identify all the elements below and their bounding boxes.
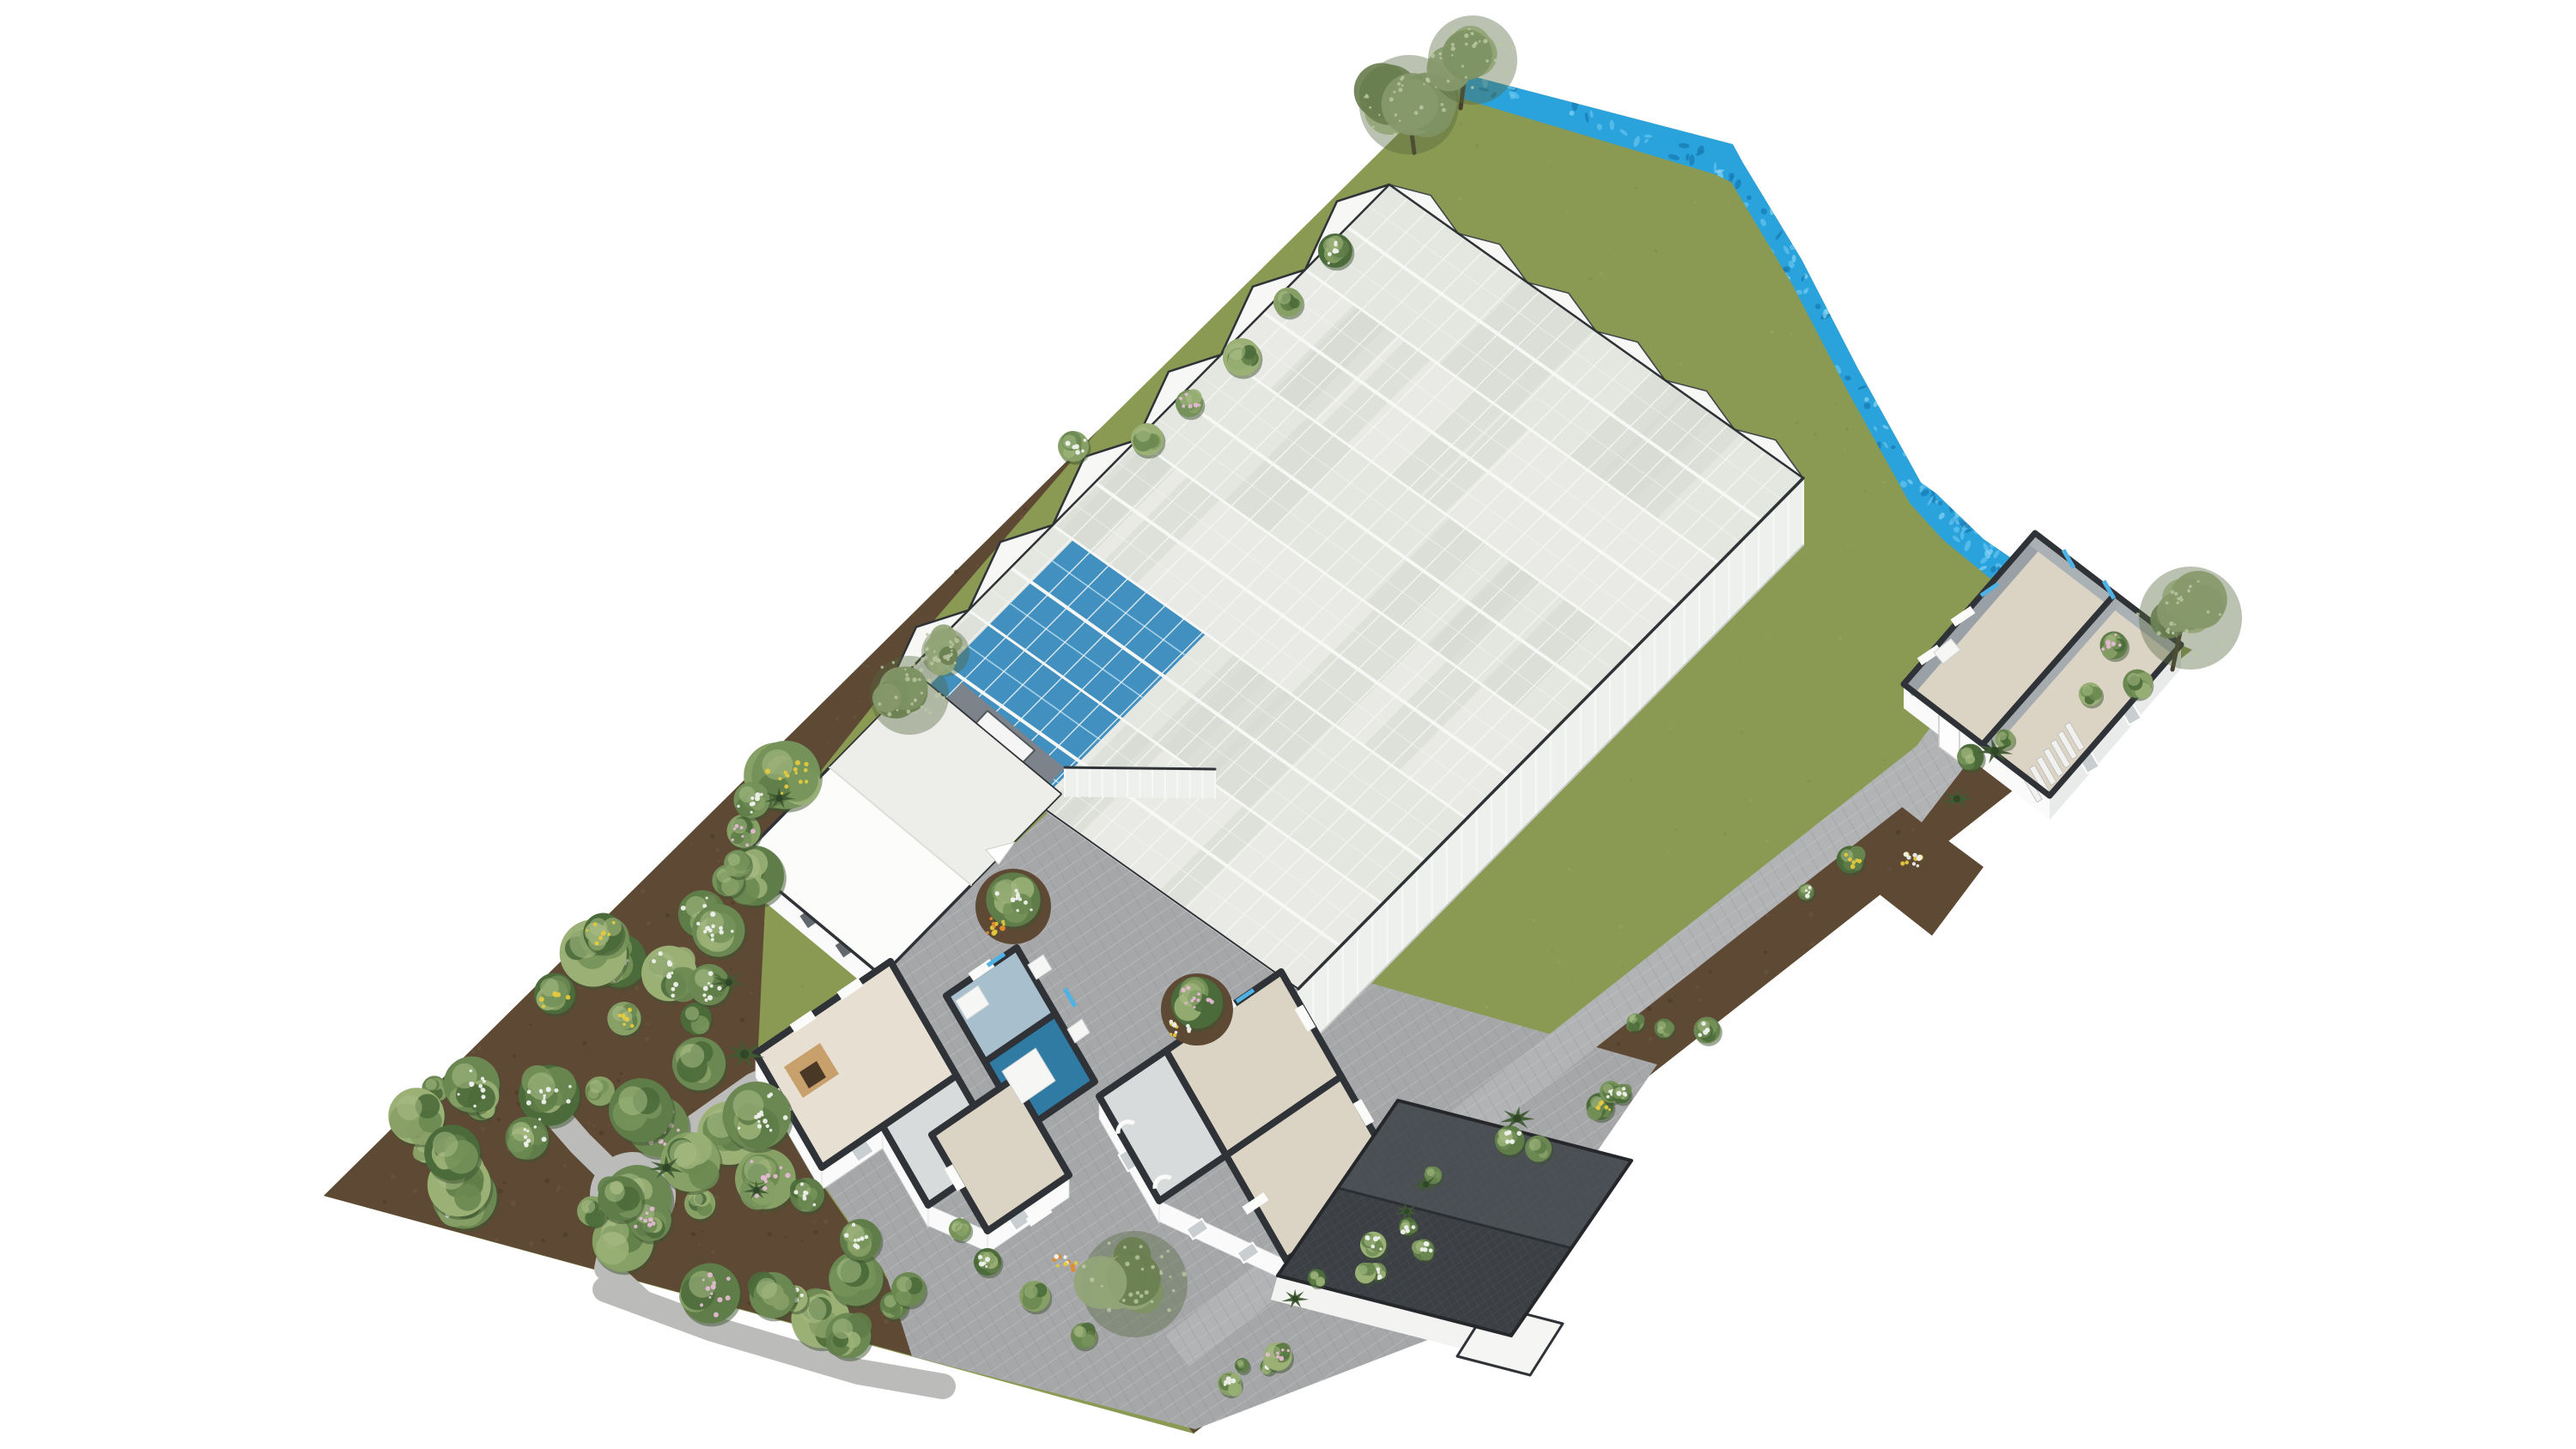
soil-speckle (511, 1201, 516, 1206)
tree-leaf-highlight (1441, 103, 1444, 106)
tree-leaf-highlight (1472, 44, 1476, 48)
soil-speckle (514, 1090, 519, 1095)
shrub-flower (1429, 1248, 1433, 1252)
shrub-flower (566, 995, 571, 1000)
soil-speckle (513, 1054, 516, 1058)
shrub-highlight (1629, 1016, 1637, 1023)
lawn-speckle (1844, 448, 1846, 450)
tree-leaf-highlight (1167, 1308, 1170, 1312)
lawn-speckle (1840, 464, 1842, 466)
tree-leaf-highlight (1401, 84, 1404, 87)
lawn-speckle (1558, 961, 1560, 963)
lawn-speckle (1680, 362, 1682, 365)
shrub-flower (773, 1174, 777, 1179)
tree-leaf-highlight (1160, 1255, 1163, 1258)
shrub-flower (652, 959, 656, 963)
tree-leaf-highlight (1182, 1272, 1187, 1277)
tree-leaf-highlight (2172, 632, 2175, 634)
shrub-flower (1266, 1352, 1271, 1357)
shrub-flower (712, 1281, 716, 1285)
palm-center (1292, 1296, 1298, 1302)
shrub-flower (785, 1173, 790, 1178)
shrub-flower (470, 1082, 475, 1087)
soil-speckle (582, 1041, 586, 1046)
lawn-speckle (1630, 779, 1632, 782)
tree-leaf-highlight (951, 643, 954, 646)
shrub-flower (527, 1090, 532, 1094)
shrub-flower (854, 1239, 857, 1242)
tree-leaf-highlight (915, 711, 918, 713)
tree-leaf-highlight (2220, 641, 2224, 646)
shrub-flower (804, 768, 808, 773)
shrub-flower (985, 1265, 987, 1268)
soil-speckle (556, 1189, 559, 1192)
shrub-flower (735, 824, 739, 828)
flower (1070, 1264, 1074, 1268)
tree-leaf-highlight (920, 692, 923, 694)
shrub-flower (643, 1219, 647, 1223)
soil-speckle (1888, 867, 1892, 870)
tree-leaf-highlight (1485, 59, 1489, 63)
shrub-flower (1412, 1225, 1416, 1229)
palm-center (1953, 796, 1960, 803)
tree-leaf-highlight (878, 702, 881, 706)
shrub-highlight (1236, 1360, 1243, 1367)
lawn-speckle (1475, 144, 1479, 148)
flower (1170, 1020, 1174, 1024)
shrub-flower (745, 843, 749, 846)
shrub-flower (750, 828, 756, 834)
lawn-speckle (1765, 840, 1768, 842)
shrub-flower (719, 926, 723, 931)
soil-speckle (477, 1046, 482, 1052)
lawn-speckle (1669, 727, 1671, 729)
shrub-flower (1224, 1384, 1226, 1386)
shrub-flower (1188, 404, 1193, 409)
shrub-flower (1852, 860, 1856, 864)
flower (999, 926, 1004, 931)
flower (1917, 856, 1922, 861)
shrub-flower (543, 1097, 545, 1100)
shrub-flower (566, 1099, 570, 1103)
shrub-flower (756, 1113, 762, 1119)
flower (1188, 1029, 1191, 1033)
shrub-flower (677, 1129, 680, 1132)
tree-leaf-highlight (1479, 40, 1481, 43)
shrub-flower (1015, 888, 1018, 892)
soil-speckle (471, 1050, 475, 1053)
shrub-foliage (1310, 1279, 1316, 1285)
shrub-flower (702, 993, 706, 997)
shrub-highlight (896, 1276, 912, 1292)
shrub-flower (1230, 1379, 1236, 1384)
tree-leaf-highlight (2174, 623, 2177, 626)
shrub-flower (650, 1206, 655, 1211)
tree-leaf-highlight (887, 712, 891, 717)
flower (989, 917, 993, 920)
soil-speckle (913, 614, 915, 616)
shrub-flower (702, 1279, 705, 1282)
tree-leaf-highlight (1394, 113, 1397, 116)
soil-speckle (730, 968, 732, 970)
shrub-flower (717, 1297, 722, 1302)
shrub-highlight (685, 1007, 699, 1021)
tree-leaf-highlight (1107, 1308, 1111, 1313)
tree-leaf-highlight (914, 699, 917, 702)
soil-speckle (731, 901, 734, 905)
shrub-flower (708, 1272, 713, 1277)
lawn-speckle (1807, 779, 1810, 782)
soil-speckle (503, 1181, 507, 1185)
shrub-flower (710, 985, 714, 988)
tree-leaf-highlight (904, 668, 906, 670)
tree-leaf-highlight (1167, 1250, 1170, 1252)
soil-speckle (1764, 969, 1768, 973)
tree-leaf-highlight (1451, 54, 1454, 57)
shrub-flower (1616, 1091, 1621, 1096)
shrub-flower (750, 1160, 754, 1163)
shrub-flower (1016, 892, 1019, 895)
soil-speckle (691, 1109, 694, 1112)
shrub-flower (1423, 1247, 1427, 1252)
shrub-flower (2111, 641, 2116, 646)
shrub-flower (726, 1295, 731, 1300)
shrub-flower (1011, 897, 1015, 901)
tree-leaf-highlight (955, 639, 959, 643)
tree-leaf-highlight (2219, 613, 2221, 615)
tree-leaf-highlight (1471, 86, 1474, 89)
shrub-flower (706, 897, 708, 900)
shrub-flower (481, 1076, 484, 1080)
shrub-flower (1805, 889, 1807, 892)
shrub-flower (762, 1186, 767, 1191)
lawn-speckle (1795, 421, 1798, 424)
tree-leaf-highlight (2210, 648, 2214, 652)
tree-leaf-highlight (2197, 580, 2200, 583)
shrub-flower (1197, 998, 1200, 1002)
lawn-speckle (1548, 160, 1550, 161)
tree-leaf-highlight (1378, 114, 1380, 116)
shrub-flower (733, 828, 736, 830)
shrub-flower (767, 1094, 771, 1099)
tree-leaf-highlight (1470, 32, 1473, 35)
lawn-speckle (1883, 759, 1886, 761)
tree-leaf-highlight (924, 708, 927, 712)
shrub-flower (539, 1090, 543, 1094)
shrub-flower (708, 982, 710, 985)
shrub-flower (554, 994, 557, 997)
shrub-flower (760, 793, 763, 797)
tree-leaf-highlight (1500, 42, 1504, 45)
shrub-flower (1197, 992, 1200, 996)
shrub-flower (1705, 1028, 1708, 1030)
soil-speckle (607, 1125, 610, 1127)
soil-speckle (710, 834, 714, 839)
tree-leaf-highlight (1133, 1299, 1138, 1303)
tree-leaf-highlight (905, 676, 910, 682)
soil-speckle (866, 665, 868, 668)
shrub-flower (784, 771, 787, 774)
shrub-highlight (728, 853, 740, 865)
shrub-flower (541, 1100, 546, 1105)
shrub-flower (1333, 248, 1337, 252)
soil-speckle (647, 1022, 650, 1026)
shrub-flower (857, 1238, 860, 1241)
shrub-flower (481, 1088, 486, 1093)
tile-line (1321, 1397, 2576, 1449)
shrub-flower (719, 930, 723, 934)
soil-speckle (872, 1308, 874, 1310)
soil-speckle (1617, 1042, 1620, 1046)
shrub-flower (659, 951, 663, 955)
shrub-flower (708, 971, 714, 976)
shrub-flower (755, 796, 760, 801)
soil-speckle (391, 1174, 395, 1179)
shrub-flower (762, 1119, 768, 1124)
shrub-flower (628, 1008, 632, 1012)
shrub-flower (1030, 908, 1032, 911)
shrub-flower (751, 802, 756, 806)
shrub-flower (1193, 997, 1196, 1000)
shrub-flower (1505, 1139, 1510, 1143)
soil-speckle (823, 1219, 828, 1223)
shrub-flower (982, 1262, 986, 1265)
palm-center (726, 979, 733, 986)
lawn-speckle (1366, 184, 1368, 185)
lawn-speckle (1532, 919, 1534, 922)
tree-leaf-highlight (896, 709, 899, 712)
shrub-flower (1210, 1000, 1214, 1004)
flower (1173, 1034, 1177, 1038)
shrub-flower (2105, 640, 2111, 645)
shrub-flower (757, 1124, 762, 1128)
shrub-flower (708, 1296, 711, 1299)
flower (993, 930, 997, 934)
shrub-highlight (1657, 1021, 1666, 1029)
tree-leaf-highlight (930, 662, 934, 666)
tree-leaf-highlight (1464, 33, 1468, 38)
shrub-flower (1185, 1002, 1188, 1004)
shrub-flower (630, 1024, 635, 1028)
tree-leaf-highlight (907, 710, 911, 714)
shrub-flower (667, 961, 672, 967)
tree-leaf-highlight (2179, 597, 2184, 602)
shrub-flower (1366, 1236, 1370, 1240)
flower (1054, 1254, 1059, 1259)
tree-leaf-highlight (935, 694, 939, 698)
tree-leaf-highlight (1504, 70, 1509, 74)
shrub-flower (705, 925, 710, 931)
tree-leaf-highlight (920, 668, 924, 672)
tree-leaf-highlight (1108, 1241, 1111, 1245)
tree-leaf-highlight (2156, 582, 2159, 585)
soil-speckle (954, 569, 959, 574)
soil-speckle (647, 921, 651, 925)
tree-leaf-highlight (1467, 28, 1470, 31)
shrub-flower (703, 986, 708, 991)
tree-leaf-highlight (927, 679, 932, 683)
shrub-flower (781, 792, 783, 795)
tree-leaf-highlight (1125, 1262, 1129, 1266)
shrub-flower (711, 1284, 716, 1289)
lawn-speckle (1485, 1005, 1488, 1009)
lawn-speckle (1635, 187, 1637, 190)
soil-speckle (562, 1232, 568, 1237)
tree-leaf-highlight (903, 660, 906, 663)
shrub-highlight (1529, 1138, 1541, 1150)
tree-leaf-highlight (920, 706, 924, 709)
shrub-flower (766, 1173, 770, 1178)
shrub-flower (803, 1191, 807, 1195)
shrub-flower (1281, 1349, 1285, 1352)
shrub-flower (710, 933, 714, 937)
tree-leaf-highlight (2180, 596, 2183, 598)
shrub-highlight (739, 786, 756, 803)
palm-center (740, 1050, 750, 1059)
tree-leaf-highlight (1452, 28, 1456, 33)
tree-leaf-highlight (1151, 1300, 1154, 1303)
shrub-flower (1228, 1381, 1231, 1385)
water-ripple (1922, 470, 1929, 479)
tree-leaf-highlight (1497, 43, 1500, 46)
shrub-flower (1400, 1229, 1406, 1234)
shrub-flower (1015, 897, 1018, 900)
tree-leaf-highlight (1372, 126, 1375, 129)
tree-leaf-highlight (2169, 621, 2173, 626)
shrub-flower (1327, 262, 1330, 264)
soil-speckle (1764, 950, 1767, 954)
shrub-flower (714, 1313, 719, 1318)
tree-leaf-highlight (1122, 1299, 1126, 1302)
lawn-speckle (1845, 427, 1849, 431)
palm-center (663, 1164, 671, 1172)
lawn-speckle (1694, 202, 1697, 204)
soil-speckle (1765, 913, 1769, 917)
soil-speckle (665, 912, 670, 917)
shrub-flower (1226, 1376, 1231, 1381)
tree-leaf-highlight (1172, 1289, 1175, 1292)
tree-leaf-highlight (2187, 589, 2190, 592)
shrub-highlight (1075, 1326, 1087, 1338)
soil-speckle (544, 1179, 550, 1184)
water-ripple (1988, 533, 2001, 545)
tree-leaf-highlight (1431, 54, 1435, 58)
tree-leaf-highlight (918, 678, 921, 682)
shrub-flower (1206, 997, 1211, 1002)
soil-speckle (711, 1251, 714, 1254)
soil-speckle (750, 991, 752, 994)
tree-leaf-highlight (1451, 43, 1455, 46)
soil-speckle (1695, 985, 1698, 989)
tree-leaf-highlight (1159, 1270, 1162, 1273)
tree-leaf-highlight (1090, 1277, 1095, 1282)
tree-leaf-highlight (1438, 52, 1442, 56)
shrub-flower (607, 933, 611, 937)
shrub-flower (1198, 403, 1200, 406)
tree-leaf-highlight (1101, 1285, 1103, 1288)
shrub-flower (1844, 852, 1849, 857)
tree-leaf-highlight (1366, 95, 1369, 98)
shrub-flower (1371, 1245, 1376, 1249)
shrub-flower (618, 1014, 623, 1018)
shrub-flower (1516, 1131, 1522, 1136)
tree-leaf-highlight (1399, 119, 1401, 122)
soil-speckle (690, 843, 693, 846)
flower (1056, 1264, 1060, 1268)
tree-leaf-highlight (1394, 133, 1396, 135)
palm-center (1404, 1209, 1409, 1214)
tree-leaf-highlight (942, 696, 945, 700)
shrub-flower (1084, 439, 1087, 442)
tree-leaf-highlight (1139, 1294, 1144, 1298)
shrub-flower (649, 1218, 653, 1222)
lawn-speckle (1790, 333, 1793, 336)
shrub-foliage (1290, 298, 1300, 308)
shrub-highlight (1998, 731, 2007, 740)
flower (1172, 1022, 1177, 1028)
tree-leaf-highlight (912, 663, 916, 667)
palm-center (1991, 747, 2000, 755)
soil-speckle (542, 1239, 545, 1242)
tree-leaf-highlight (905, 673, 908, 676)
tree-leaf-highlight (943, 655, 947, 659)
shrub-flower (634, 1225, 637, 1228)
shrub-highlight (756, 1278, 777, 1299)
tree-leaf-highlight (1128, 1293, 1133, 1297)
shrub-flower (543, 1094, 546, 1098)
shrub-flower (803, 1194, 806, 1197)
lawn-speckle (1458, 197, 1461, 200)
shrub-flower (595, 941, 599, 945)
shrub-highlight (590, 1080, 604, 1094)
shrub-flower (2101, 647, 2105, 651)
lawn-speckle (1600, 272, 1603, 276)
shrub-flower (800, 1294, 804, 1297)
tree-leaf-highlight (962, 646, 965, 650)
shrub-flower (711, 937, 714, 941)
lawn-speckle (1771, 638, 1772, 640)
shrub-flower (1182, 404, 1185, 408)
shrub-flower (795, 772, 798, 774)
flower (1906, 855, 1911, 859)
palm-center (753, 1187, 759, 1193)
lawn-speckle (1771, 330, 1774, 334)
shrub-highlight (618, 1086, 647, 1115)
soil-speckle (413, 1189, 416, 1192)
lawn-speckle (1882, 481, 1885, 483)
tree-leaf-highlight (1135, 1255, 1139, 1259)
lawn-speckle (1834, 403, 1836, 404)
soil-speckle (1668, 998, 1673, 1003)
shrub-flower (612, 921, 616, 925)
soil-speckle (702, 1231, 703, 1233)
shrub-highlight (1310, 1271, 1318, 1279)
lawn-speckle (1622, 965, 1624, 967)
soil-speckle (530, 1024, 532, 1027)
lawn-speckle (1847, 543, 1849, 544)
shrub-flower (1024, 900, 1028, 905)
shrub-flower (1194, 403, 1199, 408)
shrub-flower (865, 1235, 868, 1239)
soil-speckle (1020, 515, 1024, 518)
soil-speckle (785, 1236, 787, 1238)
shrub-highlight (1961, 747, 1973, 759)
tree-leaf-highlight (920, 658, 925, 662)
tree-leaf-highlight (951, 650, 953, 652)
soil-speckle (579, 987, 580, 989)
shrub-flower (1075, 450, 1080, 455)
shrub-flower (766, 1125, 769, 1128)
